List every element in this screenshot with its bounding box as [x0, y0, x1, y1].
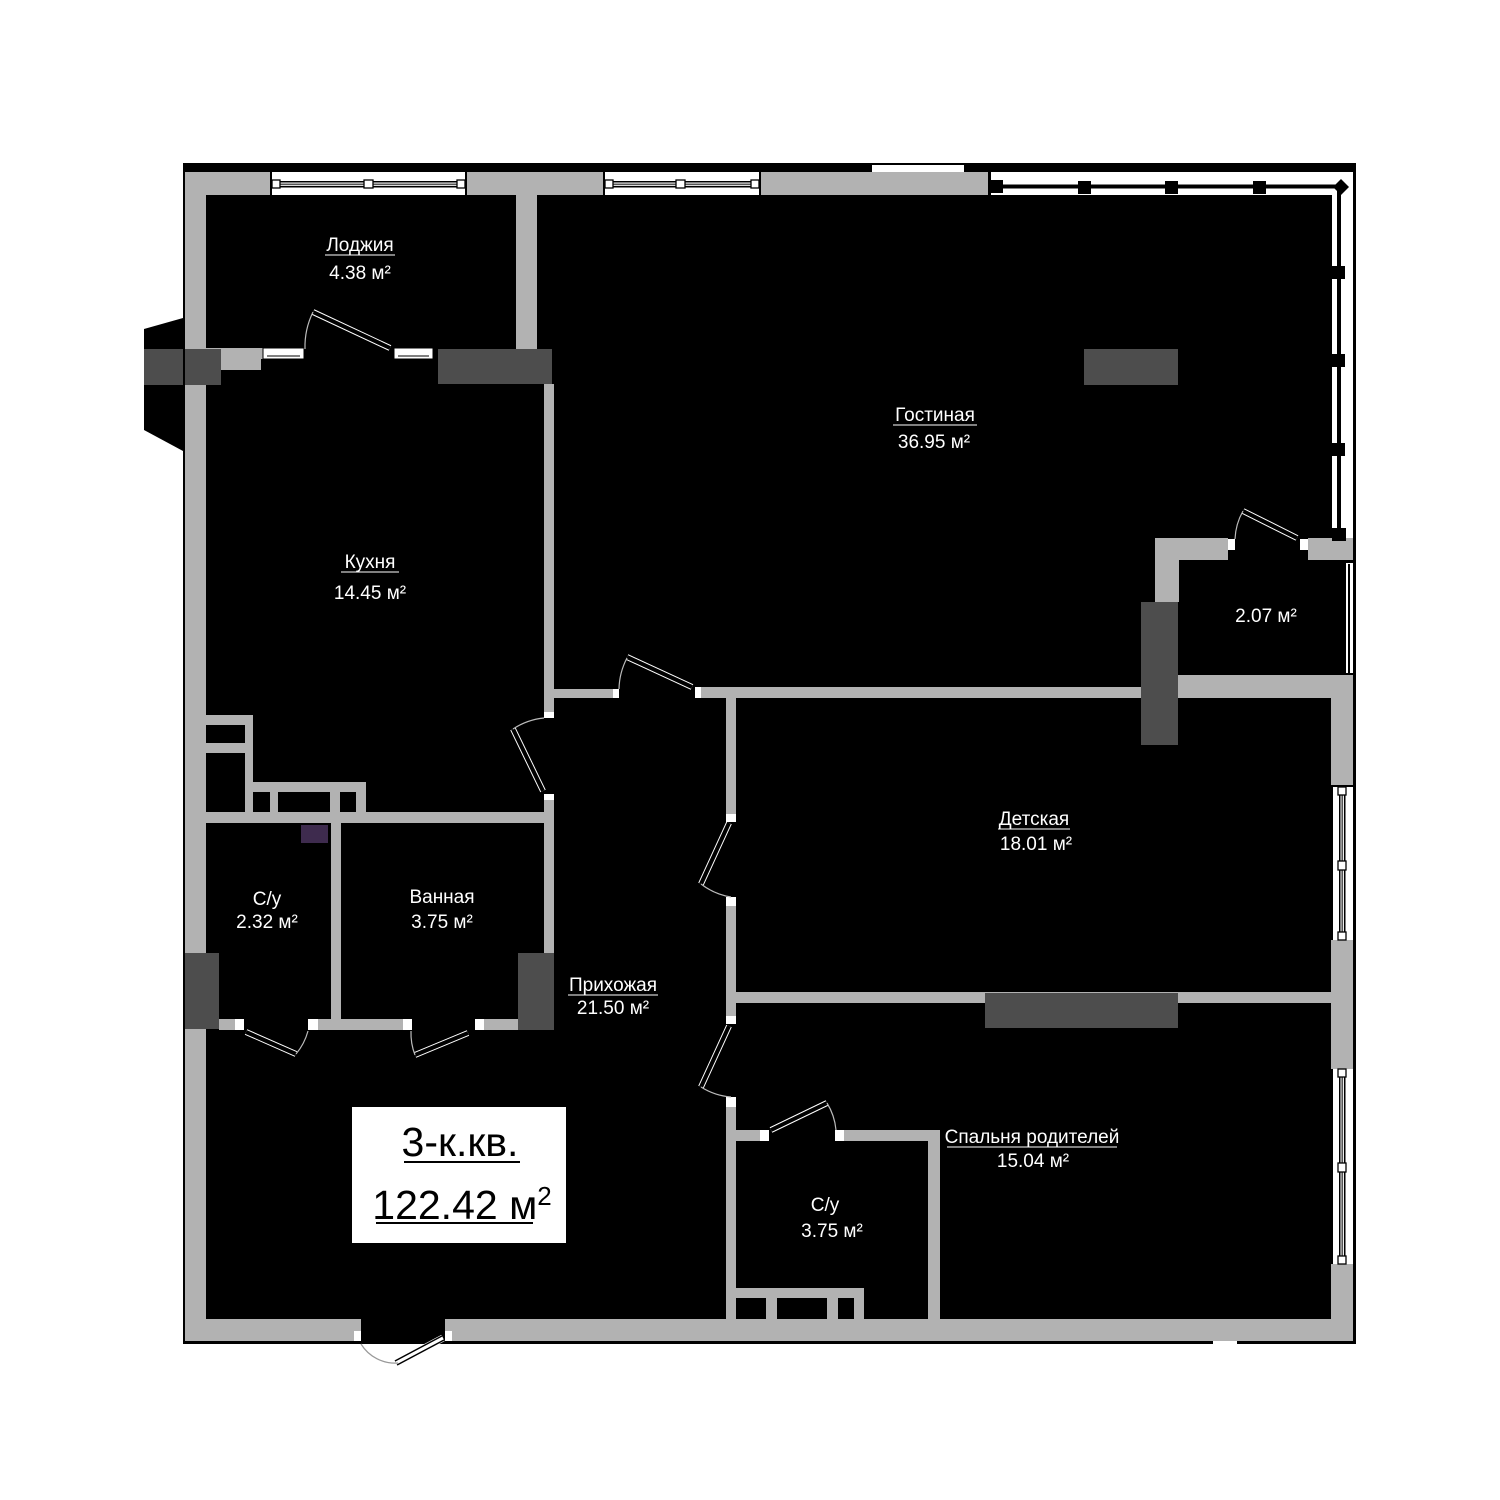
svg-text:18.01 м²: 18.01 м² — [1000, 834, 1072, 855]
svg-text:Детская: Детская — [999, 809, 1069, 830]
svg-text:Гостиная: Гостиная — [895, 405, 975, 426]
svg-text:2.07 м²: 2.07 м² — [1235, 606, 1297, 627]
svg-text:3.75 м²: 3.75 м² — [801, 1221, 863, 1242]
svg-text:36.95 м²: 36.95 м² — [898, 432, 970, 453]
svg-text:Ванная: Ванная — [409, 887, 474, 908]
svg-text:3.75 м²: 3.75 м² — [411, 912, 473, 933]
svg-text:Лоджия: Лоджия — [326, 235, 393, 256]
svg-text:122.42 м2: 122.42 м2 — [372, 1181, 551, 1228]
svg-text:4.38 м²: 4.38 м² — [329, 263, 391, 284]
svg-text:Прихожая: Прихожая — [569, 975, 657, 996]
svg-text:15.04 м²: 15.04 м² — [997, 1151, 1069, 1172]
svg-text:3-к.кв.: 3-к.кв. — [402, 1119, 519, 1165]
svg-text:21.50 м²: 21.50 м² — [577, 998, 649, 1019]
svg-text:2.32 м²: 2.32 м² — [236, 912, 298, 933]
svg-text:Спальня родителей: Спальня родителей — [945, 1127, 1120, 1148]
svg-text:14.45 м²: 14.45 м² — [334, 583, 406, 604]
svg-text:Кухня: Кухня — [345, 552, 396, 573]
svg-text:С/у: С/у — [811, 1195, 840, 1216]
svg-text:С/у: С/у — [253, 889, 282, 910]
